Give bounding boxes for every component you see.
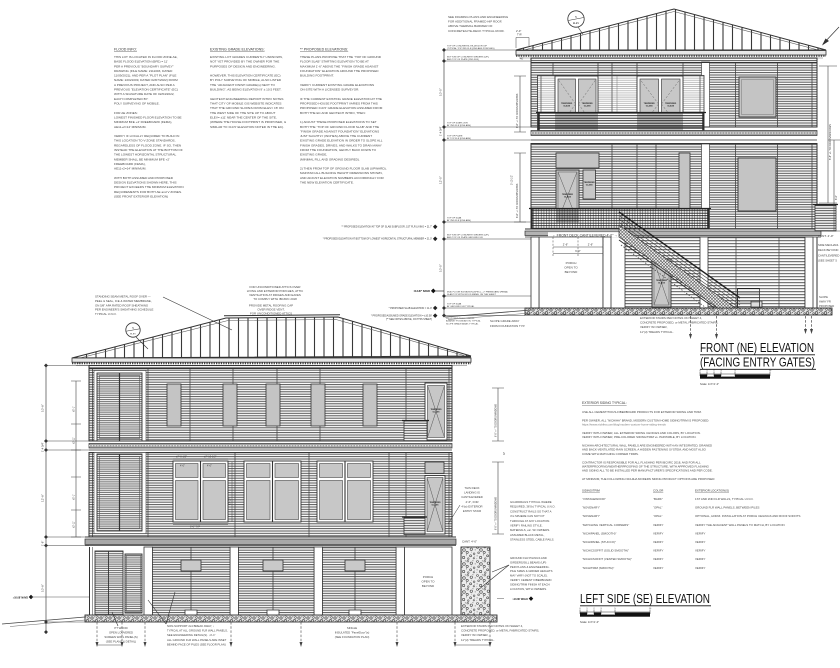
svg-text:“MATCHING VERTICAL CORNERS”: “MATCHING VERTICAL CORNERS” [582,523,629,527]
svg-text:** PROPOSED ELEVATION AT TOP O: ** PROPOSED ELEVATION AT TOP OF SLAB SUB… [342,226,433,229]
svg-text:2’-6”: 2’-6” [588,243,593,247]
svg-text:11/09/2021), AND PER A “PLOT P: 11/09/2021), AND PER A “PLOT PLAN” (FILE [114,74,176,78]
svg-text:FOR UNCONDITIONED ATTICS: FOR UNCONDITIONED ATTICS [250,312,292,316]
svg-text:TYPICAL AT ALL GROUND FLR WALL: TYPICAL AT ALL GROUND FLR WALL PANELS, [167,629,228,633]
svg-text:EXTERIOR SIDING TYPICAL:: EXTERIOR SIDING TYPICAL: [582,401,627,405]
svg-text:DRAWING (FILE NAME: 2111003, D: DRAWING (FILE NAME: 2111003, DATED [114,69,173,73]
svg-text:CANT. 4’-0”: CANT. 4’-0” [818,234,834,238]
svg-text:SINGLE: SINGLE [347,626,357,630]
svg-text:VERIFY: VERIFY [653,531,664,535]
svg-text:GUARDRAILS TYPICAL WHERE: GUARDRAILS TYPICAL WHERE [510,500,552,504]
svg-text:SLOPE: SLOPE [819,295,828,299]
svg-text:VERIFY RAILING STYLE,: VERIFY RAILING STYLE, [510,524,543,528]
svg-text:ENTRY STAIR: ENTRY STAIR [463,509,481,513]
svg-text:MAINTAIN ALL BUILDING HEIGHT D: MAINTAIN ALL BUILDING HEIGHT DIMENSIONS … [300,171,383,175]
svg-text:SCREEN WALL PANEL(S): SCREEN WALL PANEL(S) [104,635,137,639]
svg-text:PROJECT EXCEEDS THE MINIMUM EL: PROJECT EXCEEDS THE MINIMUM ELEVATION [114,185,184,189]
svg-text:MUD FLOOR ELEVATION (SPEC) + 2: MUD FLOOR ELEVATION (SPEC) + 2” FREEBOAR… [447,290,508,293]
svg-text:1’-4 3/4”: 1’-4 3/4” [41,442,45,452]
svg-text:AND TOP OF PLATE (2ND FLR): AND TOP OF PLATE (2ND FLR) [447,58,479,61]
svg-text:EXISTING GRADE ELEVATIONS:: EXISTING GRADE ELEVATIONS: [210,48,265,52]
svg-text:±2’-11”: ±2’-11” [74,521,76,528]
svg-text:CONCRETE PROPOSED, or METAL FA: CONCRETE PROPOSED, or METAL FABRICATED S… [640,321,718,325]
svg-text:PEEL & SEAL, ICE & WATER MEMBR: PEEL & SEAL, ICE & WATER MEMBRANE, [95,299,152,303]
svg-text:AGAINST FOUNDATION, TYPICAL: AGAINST FOUNDATION, TYPICAL [446,320,482,323]
svg-text:VERIFY: VERIFY [695,531,706,535]
svg-text:EXISTING GRADE,: EXISTING GRADE, [300,153,327,157]
svg-text:GLASS: GLASS [433,411,441,414]
svg-text:±7’-0 1/2”: ±7’-0 1/2” [176,455,187,459]
svg-text:10’-6”: 10’-6” [41,404,45,412]
svg-text:6’-8” +/- TO DOORS/WINDOWS: 6’-8” +/- TO DOORS/WINDOWS [516,93,519,128]
svg-text:(MINIMAL FILL AND GRADING DESI: (MINIMAL FILL AND GRADING DESIRED). [300,157,360,161]
svg-text:6’-8” +/- TO DOORS/WINDOWS: 6’-8” +/- TO DOORS/WINDOWS [829,124,832,160]
svg-text:WITH BOTH ASSUMED AND PROPOSED: WITH BOTH ASSUMED AND PROPOSED [114,176,174,180]
svg-text:VERIFY WITH OWNER, PRE-COLORED: VERIFY WITH OWNER, PRE-COLORED SIDING/TR… [582,435,696,439]
svg-text:VERIFY: VERIFY [695,566,706,570]
svg-text:“NICHICSOFFIT (VENTED SMOOTH)”: “NICHICSOFFIT (VENTED SMOOTH)” [582,557,632,561]
svg-text:(WHERE THE HOUSE FOOTPRINT IS: (WHERE THE HOUSE FOOTPRINT IS PROPOSED, … [210,120,287,124]
svg-text:4’-6”, FOR: 4’-6”, FOR [465,500,478,504]
svg-text:INSULATED “PanelDoor”(s): INSULATED “PanelDoor”(s) [335,631,370,635]
svg-text:EXTERIOR STAIRS PER NOTES ON S: EXTERIOR STAIRS PER NOTES ON SHEET 4, [640,316,702,320]
svg-text:FLOOR SLAB” STARTING ELEVATION: FLOOR SLAB” STARTING ELEVATION TO BE AT [300,60,369,64]
svg-text:BASE FLOOD ELEVATION (BFE) = 1: BASE FLOOD ELEVATION (BFE) = 11' [114,60,168,64]
svg-text:ELEV= ±11' NEAR THE CENTER OF: ELEV= ±11' NEAR THE CENTER OF THE SITE, [210,116,277,120]
svg-text:OPEN TO: OPEN TO [422,580,436,584]
svg-text:VERIFY W/ OWNER,: VERIFY W/ OWNER, [640,325,668,329]
svg-text:CANTILEVERED: CANTILEVERED [818,253,839,257]
svg-text:SIDING/TRIM: SIDING/TRIM [582,489,600,493]
svg-text:NAME: 22021009, DATED 02/07/20: NAME: 22021009, DATED 02/07/2022) FROM [114,78,178,82]
svg-text:FOR ADDITIONAL FRAMED HIP ROOF: FOR ADDITIONAL FRAMED HIP ROOF, [448,20,502,24]
svg-text:FOUNDATION” ELEVATION AROUND T: FOUNDATION” ELEVATION AROUND THE PROPOSE… [300,69,379,73]
svg-text:(SEE PLANS & DETAIL): (SEE PLANS & DETAIL) [106,640,136,644]
svg-text:“FINISH GRADE AGAINST FOUNDATI: “FINISH GRADE AGAINST FOUNDATION” ELEVAT… [300,129,379,133]
svg-text:LOWEST FINISHED FLOOR ELEVATIO: LOWEST FINISHED FLOOR ELEVATION TO BE [114,116,182,120]
svg-text:GEOTECH ENGINEERING REPORT INT: GEOTECH ENGINEERING REPORT INTRO NOTES [210,97,283,101]
svg-text:OPEN LOUVERED: OPEN LOUVERED [109,631,133,635]
svg-text:GLASS: GLASS [564,196,572,199]
svg-text:* PROPOSED ELEVATION AT BOTTOM: * PROPOSED ELEVATION AT BOTTOM OF LOWEST… [323,238,433,241]
svg-text:TOP OF SUBFLOOR: TOP OF SUBFLOOR [447,122,468,124]
svg-text:GLASS: GLASS [646,105,654,108]
svg-text:THESE PLANS PROPOSE THAT THE “: THESE PLANS PROPOSE THAT THE “TOP OF GRO… [300,55,382,59]
svg-text:±5’-1”: ±5’-1” [74,494,76,500]
svg-text:VERIFY: VERIFY [653,566,664,570]
svg-text:ON-SITE WITH A LICENSED SURVEY: ON-SITE WITH A LICENSED SURVEYOR. [300,88,359,92]
svg-text:VERIFY: VERIFY [695,549,706,553]
svg-text:OPTIONAL, HORIZ. INSTALLATION: OPTIONAL, HORIZ. INSTALLATION AT PORCH C… [695,514,801,518]
svg-text:“VINTAGEWOOD”: “VINTAGEWOOD” [582,497,606,501]
svg-text:±5’-1”: ±5’-1” [74,406,76,412]
svg-text:THAT THE GROUND SLOPES FROM EL: THAT THE GROUND SLOPES FROM ELEV= ±8' ON [210,106,284,110]
svg-text:FROM THE FOUNDATION, GENTLY BA: FROM THE FOUNDATION, GENTLY BACK DOWN TO [300,148,377,152]
svg-text:CANTILEVERED: CANTILEVERED [461,495,482,499]
svg-text:2) THEN FROM TOP OF GROUND FLO: 2) THEN FROM TOP OF GROUND FLOOR SLAB (U… [300,167,387,171]
svg-text:VERIFY: VERIFY [653,540,664,544]
svg-text:COLOR: COLOR [653,489,663,493]
svg-text:4’(w) EXTERIOR: 4’(w) EXTERIOR [461,504,482,508]
svg-text:TOP OF SLAB: TOP OF SLAB [447,302,462,305]
svg-text:GLASS: GLASS [584,105,592,108]
svg-text:GLASS: GLASS [586,184,594,187]
svg-text:HOWEVER, THIS ELEVATION CERTIF: HOWEVER, THIS ELEVATION CERTIFICATE (EC) [210,74,281,78]
svg-text:6’-8” +/- TO DOORS/WINDOWS: 6’-8” +/- TO DOORS/WINDOWS [516,183,519,218]
svg-text:10’-6”: 10’-6” [41,584,45,592]
svg-text:4”⌀ SPHERE CAN NOT FIT: 4”⌀ SPHERE CAN NOT FIT [510,514,545,518]
svg-text:(** SEE NOTES ABOVE, ON THIS S: (** SEE NOTES ABOVE, ON THIS SHEET) [386,318,432,321]
svg-text:12’-0”: 12’-0” [439,176,443,184]
svg-text:VERIFY CURRENT EXISTING GRADE: VERIFY CURRENT EXISTING GRADE ELEVATIONS [300,83,374,87]
svg-text:FINISH GRADES, DRIVES, AND WAL: FINISH GRADES, DRIVES, AND WALKS TO DRAI… [300,143,382,147]
svg-text:REQUIRED, 36”(h) TYPICAL U.N.O: REQUIRED, 36”(h) TYPICAL U.N.O. [510,505,556,509]
svg-text:THE WEST SIDE OF THE SITE UP T: THE WEST SIDE OF THE SITE UP TO ABOUT [210,111,275,115]
svg-text:CANT. 4’-0”: CANT. 4’-0” [462,540,477,544]
svg-text:MEMBER SHALL BE MINIMUM BFE +2: MEMBER SHALL BE MINIMUM BFE +2' [114,157,170,161]
svg-text:11”(d) TREADS TYPICAL.: 11”(d) TREADS TYPICAL. [640,330,674,334]
svg-text:BOTTOM OF CONCRETE GIRDERS (UP: BOTTOM OF CONCRETE GIRDERS (UP), [447,56,490,58]
svg-text:(FACING ENTRY GATES): (FACING ENTRY GATES) [700,355,815,370]
svg-text:4’-0”: 4’-0” [180,465,185,468]
svg-text:PURPOSES OF DESIGN AND ENGINEE: PURPOSES OF DESIGN AND ENGINEERING. [210,64,276,68]
svg-text:VERIFY THE ADJACENT WALL PANEL: VERIFY THE ADJACENT WALL PANELS TO MATCH… [695,523,785,527]
svg-text:PREVIOUS “ELEVATION CERTIFICAT: PREVIOUS “ELEVATION CERTIFICATE” (EC) [114,88,178,92]
svg-text:“OPAL”: “OPAL” [653,514,662,518]
svg-text:PROPOSED ±10.5' GRADE ELEVATIO: PROPOSED ±10.5' GRADE ELEVATION ASSUMED … [300,106,383,110]
svg-text:VERIFY CEMENT FIBERBOARD: VERIFY CEMENT FIBERBOARD [510,578,552,582]
svg-text:STAINLESS STEEL CABLE RAILS.: STAINLESS STEEL CABLE RAILS. [510,538,555,542]
svg-text:4’-0”: 4’-0” [207,465,212,468]
svg-text:PER ENGINEER’S SHEATHING SCHED: PER ENGINEER’S SHEATHING SCHEDULE [95,308,153,312]
svg-text:GROUND FLR WALL PANELS, BETWEE: GROUND FLR WALL PANELS, BETWEEN PILES [695,506,760,510]
svg-text:LOCATION, WITH OWNERS.: LOCATION, WITH OWNERS. [510,587,547,591]
svg-text:SLAB TOP WITH WOOD MEMB. ON TH: SLAB TOP WITH WOOD MEMB. ON THE SHEET [447,293,497,296]
svg-text:“NICHICSOFFIT (SOLID SMOOTH)”: “NICHICSOFFIT (SOLID SMOOTH)” [582,549,629,553]
svg-text:SEE ENGINEERING DETAIL(S).: SEE ENGINEERING DETAIL(S). ↓4’-1” [167,633,216,637]
svg-text:Scale: 1/4”=1’-0”: Scale: 1/4”=1’-0” [580,620,599,624]
svg-text:GROUND FLR PILINGS AND: GROUND FLR PILINGS AND [510,556,547,560]
svg-text:FROM FOUNDATION TYP.: FROM FOUNDATION TYP. [490,324,525,328]
svg-text:A PREVIOUS PROJECT, AND ALSO P: A PREVIOUS PROJECT, AND ALSO PER A [114,83,176,87]
svg-text:PER A PREVIOUS “BOUNDARY SURVE: PER A PREVIOUS “BOUNDARY SURVEY” [114,64,174,68]
svg-text:REQUIREMENTS FOR BOTH AE and V: REQUIREMENTS FOR BOTH AE and V ZONES. [114,190,182,194]
svg-text:AE11+2=14' MINIMUM.: AE11+2=14' MINIMUM. [114,167,146,171]
svg-text:VERIFY: VERIFY [653,549,664,553]
svg-text:VERIFY: VERIFY [695,540,706,544]
svg-text:EXISTING GRADE ELEVATION IN OR: EXISTING GRADE ELEVATION IN ORDER TO SLO… [300,139,383,143]
svg-text:(SEE FRONT EXTERIOR ELEVATION): (SEE FRONT EXTERIOR ELEVATION) [114,195,168,199]
svg-text:±7’-10 1/2”: ±7’-10 1/2” [204,455,217,459]
svg-text:DESIGN ELEVATIONS SHOWN HERE,: DESIGN ELEVATIONS SHOWN HERE, THIS [114,181,177,185]
svg-text:THIS DECK: THIS DECK [465,486,480,490]
svg-text:6’-8” +/- TO DOORS/WINDOWS: 6’-8” +/- TO DOORS/WINDOWS [496,497,498,530]
svg-text:PROPOSED: PROPOSED [819,304,834,308]
svg-text:SEE FRAMING PLANS AND ENGINEER: SEE FRAMING PLANS AND ENGINEERING [448,15,509,19]
svg-text:≈10.08’ WALK: ≈10.08’ WALK [512,598,528,601]
svg-text:EACH COMPLETED BY:: EACH COMPLETED BY: [114,97,149,101]
svg-text:PORCH: PORCH [423,575,433,579]
svg-text:BUILDING FOOTPRINT.: BUILDING FOOTPRINT. [300,74,334,78]
svg-text:THIS LOCATION TO V-ZONE STANDA: THIS LOCATION TO V-ZONE STANDARDS, [114,139,176,143]
svg-text:10’-0”: 10’-0” [439,88,443,96]
svg-text:AT MINIMUM, THE FOLLOWING NICH: AT MINIMUM, THE FOLLOWING NICHIHA MODERN… [582,477,715,481]
svg-text:SIDING/TRIM FINISH AT EACH: SIDING/TRIM FINISH AT EACH [510,582,550,586]
svg-text:WITH A SIGNATURE DATE OF 02/04: WITH A SIGNATURE DATE OF 02/04/2022, [114,92,175,96]
svg-text:AT 2ND FLR (DNS ABS): AT 2ND FLR (DNS ABS) [447,219,471,222]
svg-text:TOP OF CONCRETE/LITE-DECK ROOF: TOP OF CONCRETE/LITE-DECK ROOF [447,45,488,47]
svg-text:** PROPOSED ELEVATIONS:: ** PROPOSED ELEVATIONS: [300,48,348,52]
svg-text:±2’-11”: ±2’-11” [74,437,76,444]
svg-text:MATERIALS, etc. W/ OWNERS.: MATERIALS, etc. W/ OWNERS. [510,528,550,532]
svg-text:“NOVENARY”: “NOVENARY” [582,514,600,518]
svg-text:EXISTING LOT GRADES CURRENTLY: EXISTING LOT GRADES CURRENTLY UNKNOWN, [210,55,283,59]
svg-text:POLY SURVEYING OF MOBILE.: POLY SURVEYING OF MOBILE. [114,102,160,106]
svg-text:MAXIMUM 1'-6” ABOVE THE “FINIS: MAXIMUM 1'-6” ABOVE THE “FINISH GRADE AG… [300,64,379,68]
svg-text:MINIMUM BFE +2' FREEBOARD (FEM: MINIMUM BFE +2' FREEBOARD (FEMA), [114,120,172,124]
svg-text:THAT CITY OF MOBILE GIS WEBSIT: THAT CITY OF MOBILE GIS WEBSITE INDICATE… [210,102,281,106]
svg-text:11”(d) TREADS TYPICAL.: 11”(d) TREADS TYPICAL. [461,638,495,642]
svg-text:≈10.08’ NAVD: ≈10.08’ NAVD [13,596,28,599]
svg-text:VERIFY IF LOCALLY REQUIRED TO: VERIFY IF LOCALLY REQUIRED TO BUILD IN [114,134,179,138]
svg-text:THE NEW ELEVATION CERTIFICATE.: THE NEW ELEVATION CERTIFICATE. [300,181,354,185]
svg-text:TOP OF SLAB: TOP OF SLAB [447,216,462,219]
svg-text:±3’-10”: ±3’-10” [230,498,232,505]
svg-text:TO COMPLY WITH IBC/IRC 2018: TO COMPLY WITH IBC/IRC 2018 [253,297,297,301]
svg-text:OPEN TO: OPEN TO [564,266,578,270]
svg-text:“NICHIPANEL (STUCCO)”: “NICHIPANEL (STUCCO)” [582,540,616,544]
svg-text:FLOOD INFO:: FLOOD INFO: [114,48,137,52]
svg-text:LANDING IS: LANDING IS [464,491,480,495]
svg-text:BOTH THE “TOP OF GROUND FLOOR: BOTH THE “TOP OF GROUND FLOOR SLAB” AND … [300,125,379,129]
svg-text:“OPAL”: “OPAL” [653,506,662,510]
svg-text:BEYOND: BEYOND [422,584,434,588]
svg-text:EXTERIOR STAIRS PER NOTES ON S: EXTERIOR STAIRS PER NOTES ON SHEET 4, [461,624,523,628]
svg-text:GIRDERS/SILL BEAMS (UP): GIRDERS/SILL BEAMS (UP) [510,560,546,564]
svg-text:BOTTOM OF CONCRETE GIRDERS (UP: BOTTOM OF CONCRETE GIRDERS (UP), [447,234,490,236]
svg-text:AND TOP OF PLATE GROUND FLR: AND TOP OF PLATE GROUND FLR [447,236,483,239]
svg-text:(SEE SHEET 5: (SEE SHEET 5 [818,259,837,263]
svg-text:https://www.nichiha.com/blog/m: https://www.nichiha.com/blog/modern-cust… [582,423,666,427]
svg-text:REGARDLESS OF FLOOD ZONE. IF: REGARDLESS OF FLOOD ZONE. IF SO, THEN [114,143,181,147]
svg-text:AT GROUND FLR TYPICAL: AT GROUND FLR TYPICAL [447,305,475,308]
svg-text:THE “ADJACENT FINISH GRADE(s): THE “ADJACENT FINISH GRADE(s) NEXT TO [210,83,276,87]
svg-text:1’-4 3/4”: 1’-4 3/4” [439,126,443,136]
svg-text:36”: 36” [78,362,82,365]
svg-text:3’-10 1/2”: 3’-10 1/2” [511,175,514,185]
svg-text:VERIFY: VERIFY [653,523,664,527]
svg-text:VERIFY: VERIFY [653,557,664,561]
svg-text:IF THE CURRENT EXISTING GRADE: IF THE CURRENT EXISTING GRADE ELEVATION … [300,97,382,101]
svg-text:2’-6”: 2’-6” [563,243,568,247]
svg-text:1) ADJUST THESE PROPOSED ELEVA: 1) ADJUST THESE PROPOSED ELEVATIONS TO S… [300,120,377,124]
svg-text:BOTH THE EC AND GEOTECH INTRO,: BOTH THE EC AND GEOTECH INTRO, THEN: [300,111,366,115]
svg-text:THE LOWEST HORIZONTAL STRUCTUR: THE LOWEST HORIZONTAL STRUCTURAL [114,153,176,157]
svg-text:±2’: ±2’ [504,451,506,455]
svg-text:COME WITH MATCHING CORNER TRIM: COME WITH MATCHING CORNER TRIMS. [582,452,639,456]
svg-text:ASSUMED BLACK METAL,: ASSUMED BLACK METAL, [510,533,545,537]
svg-text:PROPOSED HOUSE FOOTPRINT VARIE: PROPOSED HOUSE FOOTPRINT VARIES FROM THI… [300,102,378,106]
svg-text:GLASS: GLASS [667,105,675,108]
svg-text:10’-0”: 10’-0” [439,264,443,272]
svg-text:CONCRETE/LITE-DECK TYPICAL ROO: CONCRETE/LITE-DECK TYPICAL ROOF. [448,29,505,33]
svg-text:ABOVE THERMAL BARRIER OF: ABOVE THERMAL BARRIER OF [448,24,493,28]
svg-text:FRONT (NE) ELEVATION: FRONT (NE) ELEVATION [700,340,814,355]
svg-text:PER PLANS & ENGINEERING.: PER PLANS & ENGINEERING. [510,565,550,569]
svg-text:AND SIDING ALL TO BE INSTALLED: AND SIDING ALL TO BE INSTALLED PER MANUF… [582,469,713,473]
svg-text:AE11+2=14' MINIMUM.: AE11+2=14' MINIMUM. [114,125,146,129]
svg-text:AWAY FR: AWAY FR [819,299,831,303]
svg-text:* PROPOSED/ASSUMED GRADE ELEVA: * PROPOSED/ASSUMED GRADE ELEVATION = ±10… [371,314,433,317]
svg-text:AT 2ND FLR (DNS ABS): AT 2ND FLR (DNS ABS) [447,124,471,127]
svg-text:“NICHIPANEL (SMOOTH)”: “NICHIPANEL (SMOOTH)” [582,531,616,535]
svg-text:BY POLY SURVEYING OF MOBILE, A: BY POLY SURVEYING OF MOBILE, ALSO LISTED [210,78,282,82]
svg-text:CONCRETE PROPOSED, or METAL FA: CONCRETE PROPOSED, or METAL FABRICATED S… [461,629,539,633]
svg-text:EXTERIOR LOCATION(S): EXTERIOR LOCATION(S) [695,489,729,493]
svg-text:40’: 40’ [520,57,524,61]
svg-text:“BARK”: “BARK” [653,497,663,501]
svg-text:GLASS: GLASS [432,504,440,507]
svg-text:FOR AE ZONES:: FOR AE ZONES: [114,111,138,115]
svg-text:1’-6”: 1’-6” [41,541,45,546]
svg-text:NOT YET PROVIDED BY THE OWNER: NOT YET PROVIDED BY THE OWNER FOR THE [210,60,279,64]
svg-text:NON-SUPPORT 2x4 BREAK AWAY, ↓: NON-SUPPORT 2x4 BREAK AWAY, ↓ [167,624,215,628]
svg-text:ELEV: ELEV [573,22,580,25]
svg-text:FREEBOARD (FEMA),: FREEBOARD (FEMA), [114,162,146,166]
svg-text:PT WOOD: PT WOOD [114,626,127,630]
svg-text:VERIFY: VERIFY [695,557,706,561]
svg-text:TOP OF PLATE: TOP OF PLATE [447,134,463,137]
svg-text:(SEE FOUNDATION PLAN): (SEE FOUNDATION PLAN) [335,635,370,639]
svg-text:INSTEAD THE ELEVATION AT THE B: INSTEAD THE ELEVATION AT THE BOTTOM OF [114,148,183,152]
svg-text:AND ADJUST ELEVATION NUMBERS A: AND ADJUST ELEVATION NUMBERS ACCORDINGLY… [300,176,385,180]
svg-text:TYPICAL U.N.O.: TYPICAL U.N.O. [95,312,117,316]
svg-text:CONSTRUCT RAILS SO THAT A: CONSTRUCT RAILS SO THAT A [510,509,552,513]
svg-text:“NOVENARY”: “NOVENARY” [582,506,600,510]
svg-text:ALL GROUND FLR WALL PANELS ARE: ALL GROUND FLR WALL PANELS ARE INSET [167,638,227,642]
svg-text:GLASS: GLASS [563,105,571,108]
svg-text:DECK BEYOND: DECK BEYOND [818,248,838,252]
svg-text:MAY VARY (NOT TO SCALE).: MAY VARY (NOT TO SCALE). [510,574,548,578]
svg-text:Scale: 1/4”=1’-0”: Scale: 1/4”=1’-0” [700,382,719,386]
svg-text:PILE SIZES & GIRDER HEIGHTS: PILE SIZES & GIRDER HEIGHTS [510,569,553,573]
svg-text:BEHIND FACE OF PILES (SEE FLOO: BEHIND FACE OF PILES (SEE FLOOR PLAN) [167,642,226,646]
svg-text:STANDING SEAM METAL ROOF OVER: STANDING SEAM METAL ROOF OVER — [95,295,151,299]
svg-text:SIMILAR TO ±10.5' ELEVATION NO: SIMILAR TO ±10.5' ELEVATION NOTED IN THE… [210,125,284,129]
svg-text:GLASS: GLASS [658,282,666,285]
svg-text:6’-0”: 6’-0” [575,249,580,253]
svg-text:THROUGH AT ANY LOCATION.: THROUGH AT ANY LOCATION. [510,519,550,523]
svg-text:PROPOSED THICK GRAVEL: PROPOSED THICK GRAVEL [446,317,476,320]
svg-text:1ST AND 2ND FLR WALLS, TYPICAL: 1ST AND 2ND FLR WALLS, TYPICAL U.N.O. [695,497,754,501]
svg-text:TYP.: TYP. [517,34,522,37]
svg-text:BUILDING”, AS BEING ELEVATION: BUILDING”, AS BEING ELEVATION 9' ± 10.5 … [210,88,282,92]
svg-text:VERIFY W/ OWNER,: VERIFY W/ OWNER, [461,633,489,637]
svg-text:JUST SLIGHTLY (INCHES) ABOVE T: JUST SLIGHTLY (INCHES) ABOVE THE CURRENT [300,134,372,138]
svg-text:THIS LOT IS LOCATED IN FLOOD Z: THIS LOT IS LOCATED IN FLOOD ZONE AE, [114,55,178,59]
svg-text:(TYPICAL TOP 2ND FLR (DNS ABS: (TYPICAL TOP 2ND FLR (DNS ABS PORCHES) [447,47,495,50]
svg-text:PORCH: PORCH [566,261,577,265]
svg-text:AT TOP FLR (DNS ABS): AT TOP FLR (DNS ABS) [447,137,471,140]
svg-text:LEFT SIDE (SE) ELEVATION: LEFT SIDE (SE) ELEVATION [580,591,710,606]
svg-text:SLOPE GRADE AWAY, TYPICAL: SLOPE GRADE AWAY, TYPICAL [446,322,479,325]
svg-text:2’-0”: 2’-0” [516,29,521,33]
svg-text:ON 5/8” APA RATED ROOF SHEATHI: ON 5/8” APA RATED ROOF SHEATHING [95,303,149,307]
svg-text:“NICHITRIM (SMOOTH)”: “NICHITRIM (SMOOTH)” [582,566,614,570]
svg-text:* PROPOSED SLAB ELEVATION =: * PROPOSED SLAB ELEVATION = 11.0’ [389,307,433,310]
svg-text:±13.87’ NAVD: ±13.87’ NAVD [414,289,430,293]
svg-text:SIDE MECHANI-: SIDE MECHANI- [818,243,839,247]
svg-text:ELEV: ELEV [130,334,136,336]
svg-text:USE ALL CEMENTITIOUS-FIBERBOAR: USE ALL CEMENTITIOUS-FIBERBOARD PRODUCTS… [582,410,702,414]
svg-text:12’-6”: 12’-6” [41,494,45,502]
svg-text:6’-8” +/- TO DOORS/WINDOWS: 6’-8” +/- TO DOORS/WINDOWS [496,404,498,437]
svg-text:8’-0”: 8’-0” [835,195,838,200]
svg-text:6’-0” TYP: 6’-0” TYP [190,526,200,529]
svg-text:SLOPE GRADE AWAY: SLOPE GRADE AWAY [490,319,520,323]
svg-text:BEYOND: BEYOND [565,270,579,274]
